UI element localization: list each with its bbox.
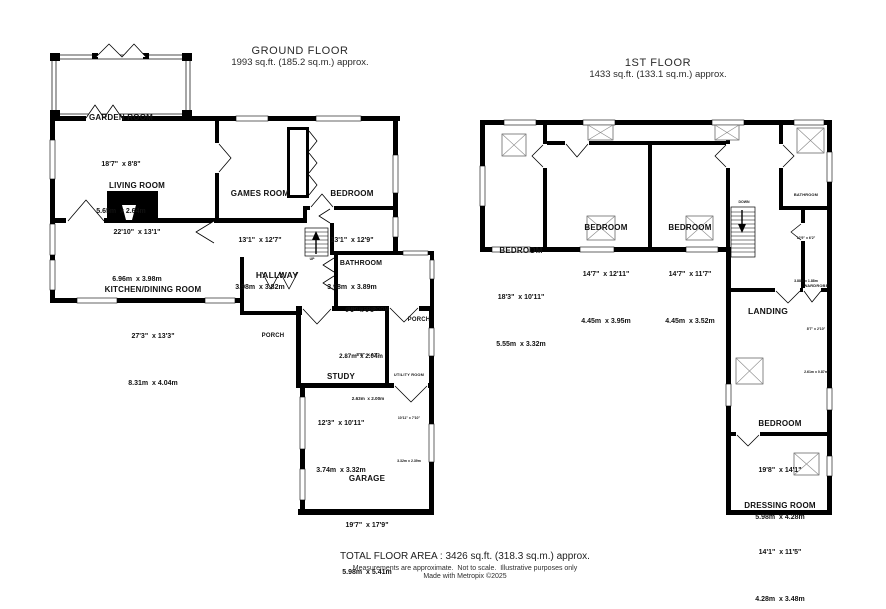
ground-floor-subtitle: 1993 sq.ft. (185.2 sq.m.) approx. [231,57,368,68]
room-label-hallway: HALLWAY [256,232,298,300]
room-label-dressing-room: DRESSING ROOM 14'1" x 11'5" 4.28m x 3.48… [744,463,816,609]
room-name: PORCH [262,333,285,340]
window-icon [236,116,268,121]
floorplan-page: GROUND FLOOR 1993 sq.ft. (185.2 sq.m.) a… [0,0,886,609]
room-label-wardrobe: WARDROBE 8'7" x 2'10" 2.61m x 0.87m [804,246,829,393]
door-swing-icon [715,145,726,167]
room-name: LIVING ROOM [109,181,165,191]
room-name: DRESSING ROOM [744,501,816,511]
room-name: BEDROOM [327,189,376,199]
door-swing-icon [196,221,214,243]
room-name: GARAGE [342,474,391,484]
room-label-bedroom-1: BEDROOM 18'3" x 10'11" 5.55m x 3.32m [496,208,545,369]
room-name: LANDING [748,306,788,316]
window-icon [50,224,55,255]
window-icon [430,260,434,279]
first-floor-subtitle: 1433 sq.ft. (133.1 sq.m.) approx. [589,69,726,80]
window-icon [50,140,55,179]
room-name: SHOWER ROOM [347,307,389,313]
room-dims-imperial: 22'10" x 13'1" [109,229,165,237]
roof-window-icon [715,125,739,140]
door-swing-icon [532,145,543,167]
room-dims-imperial: 14'1" x 11'5" [744,549,816,557]
room-name: BATHROOM [794,193,818,198]
room-name: BEDROOM [496,246,545,256]
room-dims-imperial: 12'3" x 10'11" [316,420,365,428]
door-swing-icon [783,145,794,167]
window-icon [583,120,615,125]
window-icon [726,384,731,406]
room-label-bedroom-2: BEDROOM 14'7" x 12'11" 4.45m x 3.95m [581,185,630,346]
room-label-landing: LANDING [748,268,788,336]
window-icon [429,424,434,462]
credit-text: Made with Metropix ©2025 [423,573,506,580]
room-label-bedroom-3: BEDROOM 14'7" x 11'7" 4.45m x 3.52m [665,185,714,346]
room-name: GARDEN ROOM [89,113,153,123]
room-dims-imperial: 10'11" x 7'10" [394,416,424,420]
staircase-down-icon [731,207,755,257]
room-label-garage: GARAGE 19'7" x 17'9" 5.98m x 5.41m [342,436,391,597]
room-dims-metric: 4.45m x 3.52m [665,318,714,326]
up-arrow-icon [312,231,320,254]
window-icon [300,469,305,500]
window-icon [794,120,824,125]
room-dims-imperial: 14'7" x 12'11" [581,271,630,279]
ground-floor-title: GROUND FLOOR [251,45,348,57]
room-dims-imperial: 27'3" x 13'3" [105,333,202,341]
window-icon [827,456,832,476]
room-dims-metric: 5.55m x 3.32m [496,341,545,349]
room-name: BEDROOM [581,223,630,233]
room-name: UTILITY ROOM [394,373,424,378]
room-dims-imperial: 19'7" x 17'9" [342,522,391,530]
door-swing-icon [566,144,588,157]
first-floor-title: 1ST FLOOR [625,57,691,69]
stairs-down-label: DOWN [738,200,749,204]
room-dims-metric: 3.32m x 2.39m [394,459,424,463]
room-name: STUDY [316,372,365,382]
room-dims-metric: 4.45m x 3.95m [581,318,630,326]
room-name: BEDROOM [755,419,804,429]
room-label-utility-room: UTILITY ROOM 10'11" x 7'10" 3.32m x 2.39… [394,335,424,482]
room-dims-metric: 2.61m x 0.87m [804,370,829,374]
window-icon [403,251,428,255]
room-dims-imperial: 14'7" x 11'7" [665,271,714,279]
wardrobe-door-icon [309,131,317,151]
room-name: WARDROBE [804,284,829,289]
roof-window-icon [797,128,824,153]
window-icon [480,166,485,206]
disclaimer-text: Measurements are approximate. Not to sca… [353,565,578,572]
window-icon [50,260,55,290]
room-dims-imperial: 12'9" x 6'2" [794,236,818,240]
room-dims-imperial: 8'7" x 2'10" [804,327,829,331]
wardrobe-door-icon [309,175,317,195]
roof-window-icon [588,125,613,140]
window-icon [504,120,536,125]
window-icon [393,155,398,193]
room-name: HALLWAY [256,270,298,280]
total-floor-area: TOTAL FLOOR AREA : 3426 sq.ft. (318.3 sq… [340,551,590,562]
room-name: KITCHEN/DINING ROOM [105,285,202,295]
room-label-kitchen-dining: KITCHEN/DINING ROOM 27'3" x 13'3" 8.31m … [105,247,202,408]
stairs-up-label: UP [310,257,315,261]
room-dims-metric: 8.31m x 4.04m [105,380,202,388]
window-icon [712,120,744,125]
down-arrow-icon [738,210,746,233]
room-label-porch-middle: PORCH [262,295,285,360]
room-name: BATHROOM [339,260,383,268]
window-icon [300,397,305,449]
window-icon [393,217,398,237]
roof-window-icon [502,134,526,156]
window-icon [827,152,832,182]
room-name: BEDROOM [665,223,714,233]
room-name: GAMES ROOM [231,189,289,199]
door-swing-icon [219,144,231,172]
wardrobe-door-icon [309,153,317,173]
staircase-up-icon [305,228,328,256]
window-icon [316,116,361,121]
room-dims-metric: 4.28m x 3.48m [744,596,816,604]
room-dims-imperial: 18'3" x 10'11" [496,294,545,302]
room-name: PORCH [408,317,431,324]
